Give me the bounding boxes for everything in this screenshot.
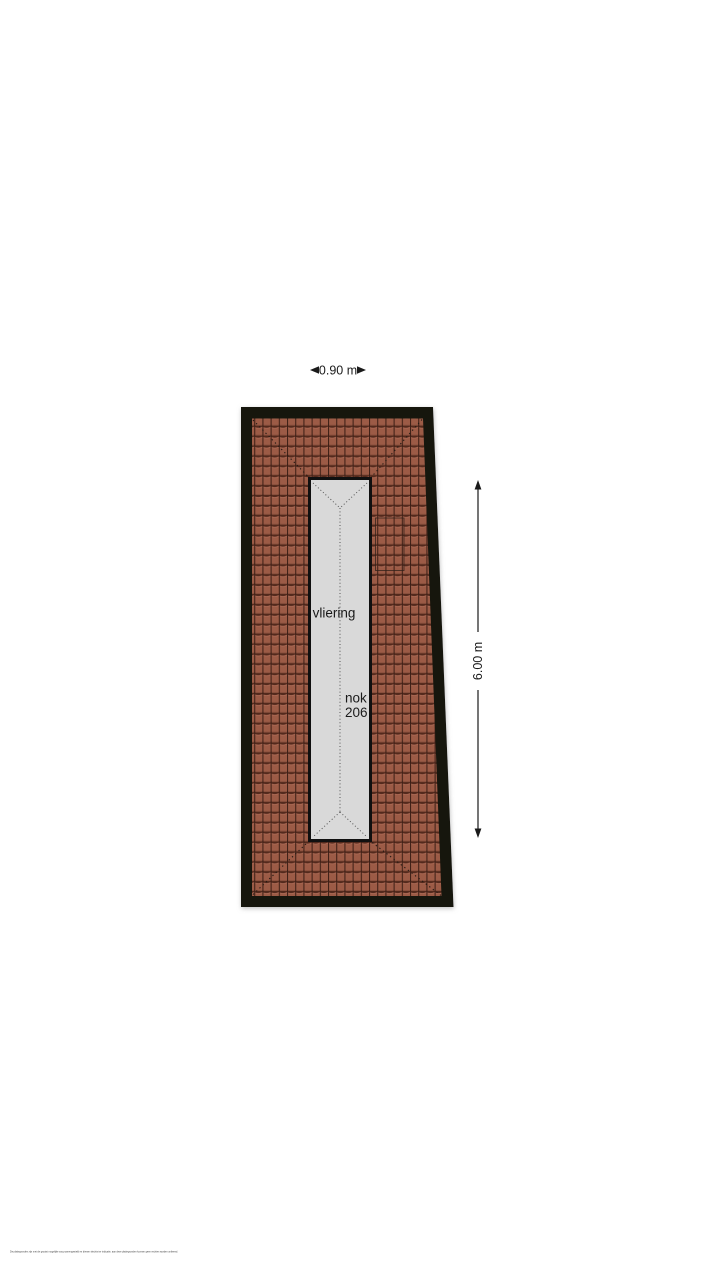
up-arrow-icon (475, 480, 482, 490)
ridge-height-value: 206 (345, 705, 368, 720)
footer-disclaimer: De plattegronden zijn met de grootst mog… (10, 1250, 178, 1254)
left-arrow-icon (310, 366, 319, 374)
attic-floor (311, 480, 369, 839)
height-dimension-label: 6.00 m (471, 642, 485, 680)
down-arrow-icon (475, 829, 482, 839)
attic-area: vliering nok 206 (308, 477, 372, 842)
roof-plan: vliering nok 206 (241, 407, 454, 907)
height-dimension: 6.00 m (471, 480, 485, 838)
floorplan-page: 0.90 m (0, 0, 720, 1280)
width-dimension-label: 0.90 m (319, 364, 357, 378)
width-dimension: 0.90 m (310, 364, 366, 378)
right-arrow-icon (357, 366, 366, 374)
ridge-label: nok (345, 691, 367, 706)
attic-label: vliering (313, 606, 356, 621)
floorplan-canvas: 0.90 m (0, 0, 720, 1280)
